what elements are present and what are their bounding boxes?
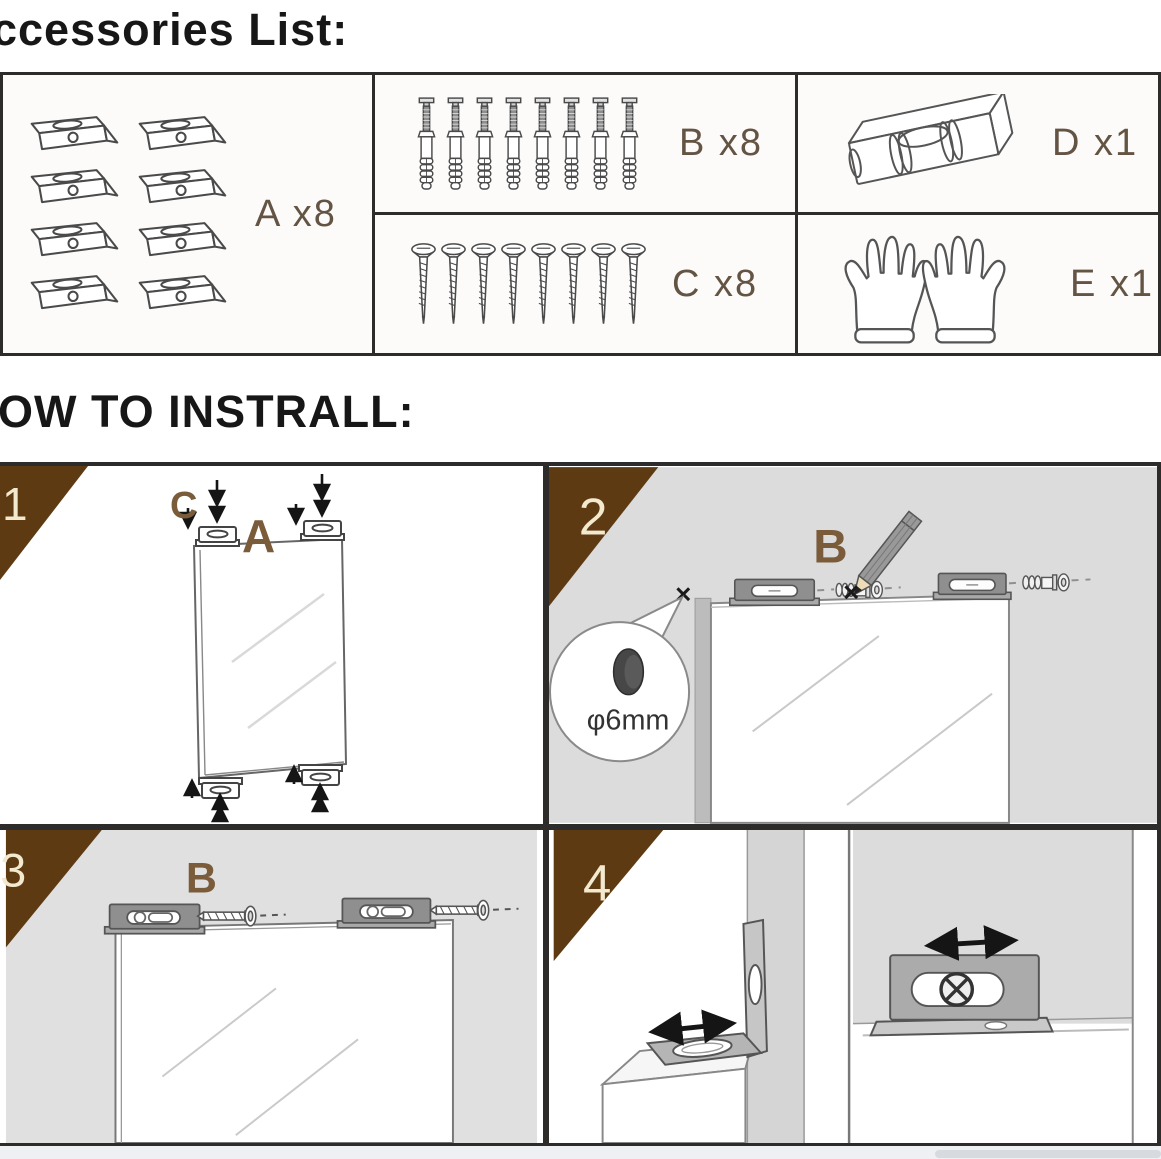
install-steps: 1 [0,462,1161,1146]
step3-illustration: B 3 [0,830,543,1143]
step1-label-c: C [170,485,197,527]
gloves-icon [842,220,1008,348]
screw-icon [409,241,438,327]
screw-icon-row [409,241,648,327]
screw-icon [619,241,648,327]
wall-anchor-icon [413,93,440,195]
bracket-icon [135,219,229,263]
accessory-cell-brackets: A x8 [3,75,372,353]
screw-icon [529,241,558,327]
instruction-sheet: ccessories List: A x8 [0,0,1161,1159]
accessories-table: A x8 B x8 [0,72,1161,356]
qty-label-d: D x1 [1052,122,1138,165]
step2-mark-right: × [843,576,859,607]
step1-number: 1 [2,478,28,530]
step3-label-b: B [186,855,217,903]
step4-illustration: 4 [549,830,1157,1143]
step2-number: 2 [579,488,608,546]
step2-label-b: B [813,521,847,574]
screw-icon [499,241,528,327]
bracket-icon [27,272,121,316]
step1-panel: 1 [0,466,543,824]
wall-anchor-icon [587,93,614,195]
qty-label-e: E x1 [1070,263,1154,306]
wall-anchor-icon [529,93,556,195]
accessory-cell-level: D x1 [798,75,1158,212]
screw-icon [469,241,498,327]
step1-label-a: A [242,510,275,562]
step2-panel: × × φ6mm B 2 [549,466,1157,824]
screw-icon [439,241,468,327]
bracket-icon-grid [27,113,229,316]
wall-anchor-icon [558,93,585,195]
horizontal-scrollbar[interactable] [935,1150,1161,1158]
accessory-cell-gloves: E x1 [798,215,1158,353]
bracket-icon [27,166,121,210]
step3-panel: B 3 [0,830,543,1143]
step2-illustration: × × φ6mm B 2 [549,466,1157,824]
step4-panel: 4 [549,830,1157,1143]
hole-diameter-label: φ6mm [587,704,670,736]
step3-number: 3 [0,845,26,897]
wall-anchor-icon [616,93,643,195]
wall-anchor-icon [442,93,469,195]
qty-label-b: B x8 [679,122,763,165]
screw-icon [559,241,588,327]
spirit-level-icon [842,94,1020,194]
bracket-icon [27,219,121,263]
accessory-cell-anchors: B x8 [375,75,795,212]
anchor-icon-row [413,93,643,195]
bracket-icon [135,272,229,316]
install-title: OW TO INSTRALL: [0,386,415,438]
bracket-icon [27,113,121,157]
accessory-cell-screws: C x8 [375,215,795,353]
qty-label-a: A x8 [255,193,337,236]
bracket-icon [135,166,229,210]
screw-icon [589,241,618,327]
wall-anchor-icon [500,93,527,195]
qty-label-c: C x8 [672,263,758,306]
wall-anchor-icon [471,93,498,195]
bracket-icon [135,113,229,157]
step4-number: 4 [583,854,611,911]
step1-illustration: 1 [0,466,543,824]
bottom-bar [0,1146,1161,1159]
accessories-title: ccessories List: [0,4,348,56]
